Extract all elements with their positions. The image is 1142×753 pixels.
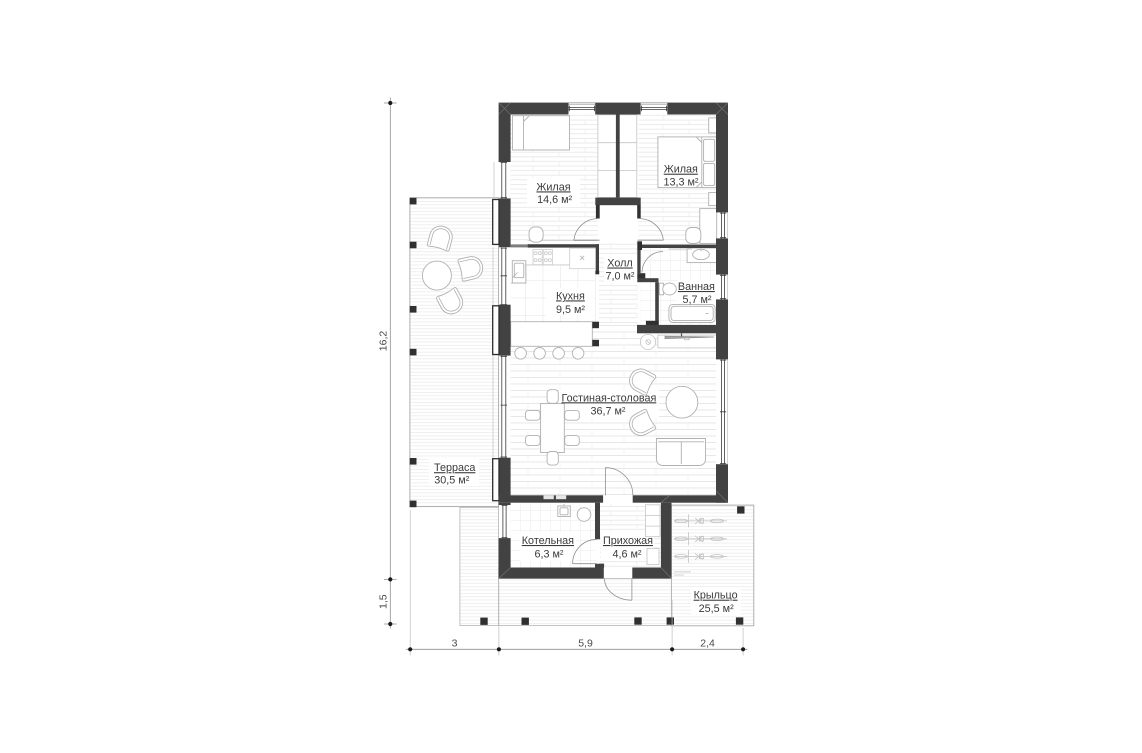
svg-text:4,6 м²: 4,6 м² [612,548,641,560]
svg-text:Крыльцо: Крыльцо [694,590,738,602]
svg-text:Прихожая: Прихожая [603,535,653,547]
svg-text:Холл: Холл [607,258,632,270]
svg-text:5,7 м²: 5,7 м² [682,294,711,306]
svg-text:13,3 м²: 13,3 м² [663,177,698,189]
svg-text:9,5 м²: 9,5 м² [556,304,585,316]
svg-text:Кухня: Кухня [556,290,585,302]
svg-text:7,0 м²: 7,0 м² [605,270,634,282]
svg-text:1,5: 1,5 [378,594,390,609]
svg-text:25,5 м²: 25,5 м² [699,603,734,615]
svg-text:5,9: 5,9 [578,637,593,649]
svg-text:Ванная: Ванная [678,281,715,293]
svg-text:Жилая: Жилая [536,181,570,193]
svg-text:Котельная: Котельная [522,535,574,547]
svg-text:2,4: 2,4 [700,637,715,649]
svg-text:Жилая: Жилая [664,164,698,176]
svg-text:16,2: 16,2 [378,331,390,352]
svg-text:36,7 м²: 36,7 м² [590,405,625,417]
svg-text:30,5 м²: 30,5 м² [434,474,469,486]
svg-text:6,3 м²: 6,3 м² [534,548,563,560]
svg-text:Гостиная-столовая: Гостиная-столовая [562,392,657,404]
svg-text:3: 3 [452,637,458,649]
svg-text:Терраса: Терраса [434,462,475,474]
svg-text:14,6 м²: 14,6 м² [537,194,572,206]
